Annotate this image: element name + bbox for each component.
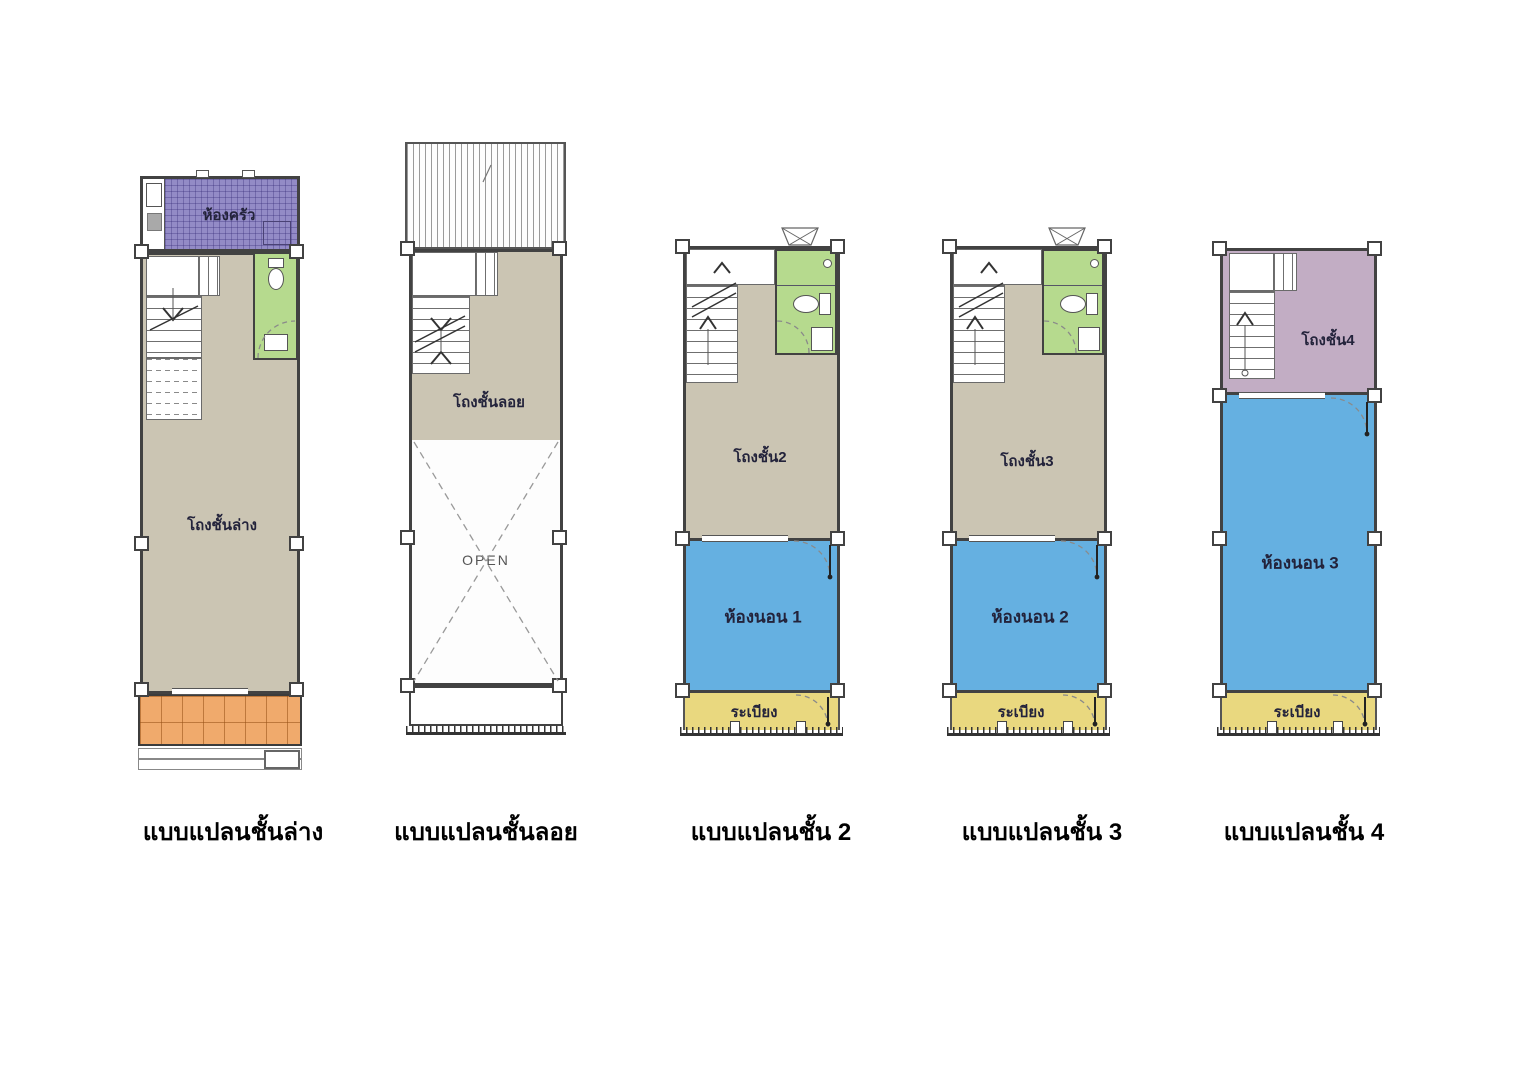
shaft-vent (1049, 228, 1085, 245)
floor2-hall-label: โถงชั้น2 (733, 445, 786, 469)
entrance-door-strip (172, 688, 248, 695)
bedroom1-label: ห้องนอน 1 (724, 604, 801, 631)
column (675, 239, 690, 254)
plan-ground-floor: ห้องครัว โถงชั้นล่าง (138, 170, 306, 800)
column (1212, 388, 1227, 403)
roof-hatch (405, 142, 566, 249)
caption-mezzanine: แบบแปลนชั้นลอย (394, 812, 578, 851)
toilet-bowl (268, 268, 284, 290)
balcony-label: ระเบียง (1274, 700, 1321, 724)
railing-post (1063, 721, 1073, 734)
column (675, 531, 690, 546)
column (942, 531, 957, 546)
toilet-bowl (1060, 295, 1086, 313)
stair-treads (1229, 291, 1275, 379)
column (134, 536, 149, 551)
bath-sink (1078, 327, 1100, 351)
bathroom (253, 252, 298, 360)
bedroom-door-strip (702, 535, 788, 542)
stair-treads-dashed (146, 358, 202, 420)
column (830, 239, 845, 254)
bedroom3-label: ห้องนอน 3 (1261, 550, 1338, 577)
railing (406, 726, 566, 735)
mezzanine-balcony (409, 686, 563, 726)
toilet-bowl (793, 295, 819, 313)
column (134, 682, 149, 697)
stair-treads (475, 252, 498, 296)
caption-ground-floor: แบบแปลนชั้นล่าง (143, 812, 323, 851)
bedroom-door-strip (969, 535, 1055, 542)
column (1097, 683, 1112, 698)
column (289, 682, 304, 697)
bedroom-door-strip (1239, 392, 1325, 399)
stair-landing (686, 249, 775, 285)
column (1212, 531, 1227, 546)
toilet-tank (1086, 293, 1098, 315)
stair-treads (953, 285, 1005, 383)
open-label: OPEN (462, 552, 510, 568)
column (289, 536, 304, 551)
bath-sink (264, 334, 288, 351)
stair-treads (412, 296, 470, 374)
caption-floor-4: แบบแปลนชั้น 4 (1224, 812, 1384, 851)
shaft-vent-x (1056, 228, 1085, 245)
kitchen-table (263, 221, 291, 245)
shaft-vent-x (1049, 228, 1078, 245)
column (1212, 241, 1227, 256)
column (830, 531, 845, 546)
floor3-hall-label: โถงชั้น3 (1000, 449, 1053, 473)
railing-post (796, 721, 806, 734)
shower-head (823, 259, 832, 268)
bathroom (1042, 249, 1104, 355)
column (675, 683, 690, 698)
plan-floor-3: โถงชั้น3 ห้องนอน 2 ระเบียง (945, 225, 1113, 770)
shaft-vent-x (789, 228, 818, 245)
stair-landing (953, 249, 1042, 285)
railing-post (1333, 721, 1343, 734)
bath-divider (777, 285, 835, 286)
kitchen-stove (147, 213, 162, 231)
vent-box (196, 170, 209, 178)
shaft-vent-x (782, 228, 811, 245)
column (552, 530, 567, 545)
kitchen-block: ห้องครัว (140, 176, 300, 252)
column (552, 241, 567, 256)
bathroom (775, 249, 837, 355)
column (1367, 388, 1382, 403)
stair-treads (198, 256, 220, 296)
caption-floor-2: แบบแปลนชั้น 2 (691, 812, 851, 851)
planter-box (264, 750, 300, 769)
bedroom2-label: ห้องนอน 2 (991, 604, 1068, 631)
column (552, 678, 567, 693)
column (400, 530, 415, 545)
balcony-label: ระเบียง (998, 700, 1045, 724)
bath-sink (811, 327, 833, 351)
bath-divider (1044, 285, 1102, 286)
column (134, 244, 149, 259)
plan-mezzanine: โถงชั้นลอย OPEN (403, 140, 569, 770)
plan-floor-4: โถงชั้น4 ห้องนอน 3 ระเบียง (1215, 225, 1383, 770)
railing (947, 727, 1110, 736)
shower-head (1090, 259, 1099, 268)
column (1097, 531, 1112, 546)
floor4-hall-label: โถงชั้น4 (1301, 328, 1354, 352)
column (289, 244, 304, 259)
caption-floor-3: แบบแปลนชั้น 3 (962, 812, 1122, 851)
floor-plan-sheet: ห้องครัว โถงชั้นล่าง (0, 0, 1522, 1076)
column (942, 683, 957, 698)
column (830, 683, 845, 698)
stair-treads (146, 296, 202, 358)
railing (1217, 727, 1380, 736)
column (1097, 239, 1112, 254)
mezzanine-hall-label: โถงชั้นลอย (453, 390, 525, 414)
toilet-tank (268, 258, 284, 268)
balcony-label: ระเบียง (731, 700, 778, 724)
kitchen-label: ห้องครัว (203, 203, 256, 227)
column (1367, 531, 1382, 546)
railing (680, 727, 843, 736)
shaft-vent (782, 228, 818, 245)
column (1367, 683, 1382, 698)
ground-hall-label: โถงชั้นล่าง (187, 513, 257, 537)
terrace-tiles (138, 694, 302, 746)
stair-treads (1273, 253, 1297, 291)
column (400, 678, 415, 693)
toilet-tank (819, 293, 831, 315)
column (400, 241, 415, 256)
kitchen-counter (143, 179, 165, 249)
column (942, 239, 957, 254)
kitchen-sink (146, 183, 162, 207)
vent-box (242, 170, 255, 178)
stair-treads (686, 285, 738, 383)
column (1212, 683, 1227, 698)
column (1367, 241, 1382, 256)
plan-floor-2: โถงชั้น2 ห้องนอน 1 ระเบียง (678, 225, 846, 770)
